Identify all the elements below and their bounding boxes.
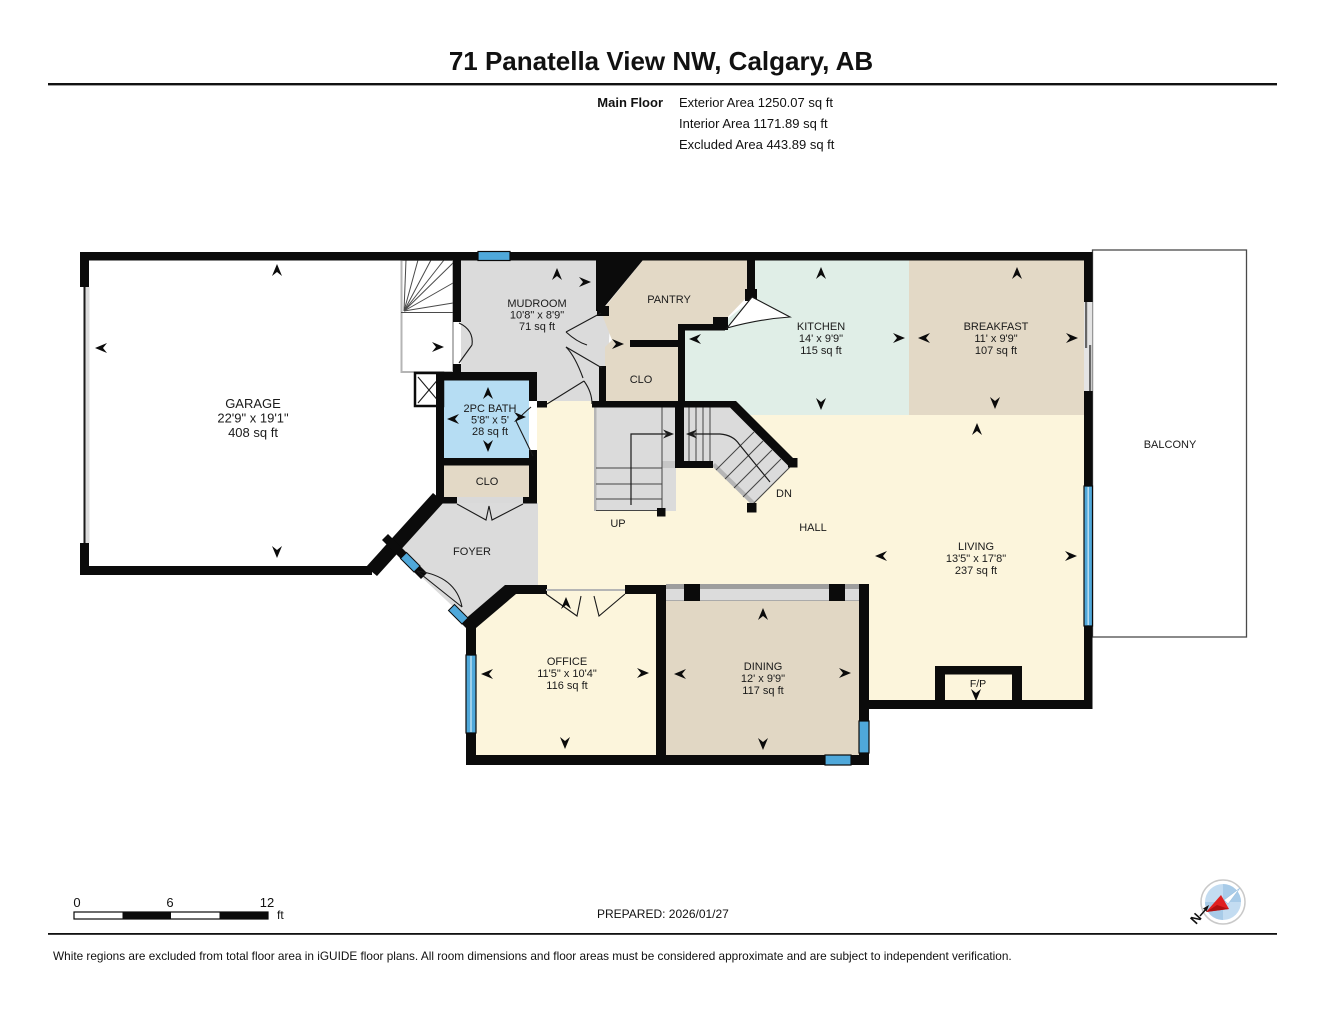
svg-text:5'8" x 5': 5'8" x 5' <box>471 415 509 427</box>
svg-text:White regions are excluded fro: White regions are excluded from total fl… <box>53 949 1012 963</box>
svg-text:BREAKFAST: BREAKFAST <box>964 321 1029 333</box>
svg-text:UP: UP <box>610 518 625 530</box>
svg-text:OFFICE: OFFICE <box>547 656 587 668</box>
svg-text:CLO: CLO <box>476 476 499 488</box>
svg-text:DN: DN <box>776 488 792 500</box>
svg-text:PREPARED: 2026/01/27: PREPARED: 2026/01/27 <box>597 907 729 921</box>
svg-text:107 sq ft: 107 sq ft <box>975 345 1017 357</box>
svg-text:Interior Area 1171.89 sq ft: Interior Area 1171.89 sq ft <box>679 116 828 131</box>
svg-text:12' x 9'9": 12' x 9'9" <box>741 673 785 685</box>
svg-text:Main Floor: Main Floor <box>597 95 663 110</box>
svg-text:12: 12 <box>260 895 274 910</box>
svg-text:HALL: HALL <box>799 522 827 534</box>
svg-text:MUDROOM: MUDROOM <box>507 298 566 310</box>
svg-text:28 sq ft: 28 sq ft <box>472 426 508 438</box>
svg-text:22'9" x 19'1": 22'9" x 19'1" <box>217 411 289 426</box>
svg-text:71 Panatella View NW, Calgary,: 71 Panatella View NW, Calgary, AB <box>449 46 873 76</box>
svg-text:13'5" x 17'8": 13'5" x 17'8" <box>946 553 1006 565</box>
svg-text:PANTRY: PANTRY <box>647 294 691 306</box>
svg-text:DINING: DINING <box>744 661 783 673</box>
svg-text:BALCONY: BALCONY <box>1144 439 1197 451</box>
svg-text:GARAGE: GARAGE <box>225 396 281 411</box>
svg-text:Excluded Area 443.89 sq ft: Excluded Area 443.89 sq ft <box>679 137 835 152</box>
svg-text:116 sq ft: 116 sq ft <box>546 680 587 692</box>
svg-text:LIVING: LIVING <box>958 541 994 553</box>
svg-text:115 sq ft: 115 sq ft <box>800 345 841 357</box>
svg-text:0: 0 <box>73 895 80 910</box>
svg-text:F/P: F/P <box>970 678 986 690</box>
svg-text:237 sq ft: 237 sq ft <box>955 565 997 577</box>
svg-text:11' x 9'9": 11' x 9'9" <box>974 333 1017 345</box>
svg-text:ft: ft <box>277 908 284 922</box>
svg-text:FOYER: FOYER <box>453 546 491 558</box>
svg-text:10'8" x 8'9": 10'8" x 8'9" <box>510 310 564 322</box>
svg-text:117 sq ft: 117 sq ft <box>742 685 783 697</box>
svg-text:CLO: CLO <box>630 374 653 386</box>
svg-text:71 sq ft: 71 sq ft <box>519 321 555 333</box>
svg-text:KITCHEN: KITCHEN <box>797 321 845 333</box>
svg-text:408 sq ft: 408 sq ft <box>228 425 278 440</box>
svg-text:2PC BATH: 2PC BATH <box>464 403 517 415</box>
svg-text:6: 6 <box>166 895 173 910</box>
svg-text:Exterior Area 1250.07 sq ft: Exterior Area 1250.07 sq ft <box>679 95 833 110</box>
svg-text:14' x 9'9": 14' x 9'9" <box>799 333 843 345</box>
svg-text:11'5" x 10'4": 11'5" x 10'4" <box>537 668 597 680</box>
